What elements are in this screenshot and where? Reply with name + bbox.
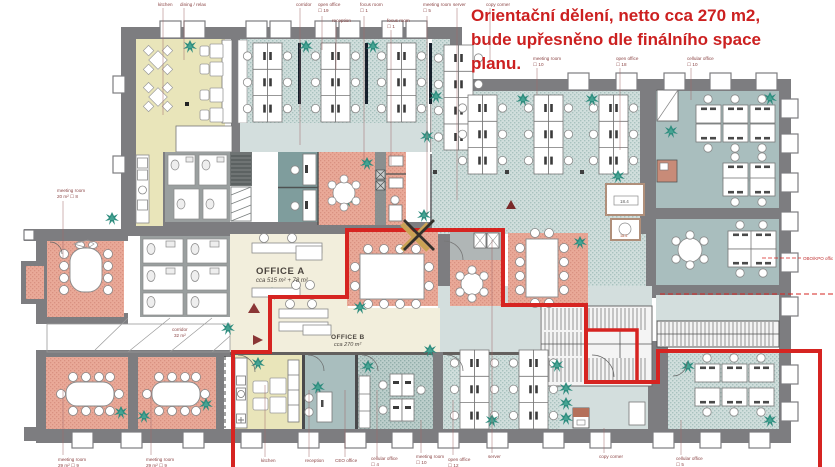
svg-text:reception: reception <box>332 18 351 23</box>
svg-text:copy corner: copy corner <box>599 454 623 459</box>
svg-text:18.5: 18.5 <box>620 234 627 238</box>
svg-text:server: server <box>488 454 501 459</box>
svg-text:reception: reception <box>305 458 324 463</box>
svg-text:cellular office: cellular office <box>687 56 714 61</box>
svg-text:OBO/KPO offic: OBO/KPO offic <box>803 256 834 261</box>
svg-text:dining / relax: dining / relax <box>180 2 207 7</box>
svg-text:focus room: focus room <box>387 18 410 23</box>
svg-text:open office: open office <box>448 457 471 462</box>
svg-text:CEO office: CEO office <box>335 458 358 463</box>
svg-text:☐ 10: ☐ 10 <box>687 62 698 67</box>
svg-text:20 m² ☐ 8: 20 m² ☐ 8 <box>57 194 78 199</box>
svg-text:meeting room: meeting room <box>146 457 174 462</box>
svg-text:meeting room: meeting room <box>58 457 86 462</box>
svg-text:☐ 4: ☐ 4 <box>371 462 379 467</box>
svg-text:meeting room: meeting room <box>533 56 561 61</box>
svg-text:cellular office: cellular office <box>371 456 398 461</box>
svg-text:☐ 5: ☐ 5 <box>423 8 431 13</box>
svg-text:☐ 19: ☐ 19 <box>318 8 329 13</box>
svg-text:meeting room: meeting room <box>57 188 85 193</box>
svg-text:open office: open office <box>616 56 639 61</box>
svg-text:cellular office: cellular office <box>676 456 703 461</box>
svg-text:OFFICE A: OFFICE A <box>256 266 305 277</box>
svg-text:☐ 10: ☐ 10 <box>416 460 427 465</box>
svg-text:18.4: 18.4 <box>620 199 629 204</box>
svg-text:copy corner: copy corner <box>486 2 510 7</box>
svg-text:meeting room: meeting room <box>416 454 444 459</box>
svg-text:focus room: focus room <box>360 2 383 7</box>
svg-text:☐ 10: ☐ 10 <box>533 62 544 67</box>
svg-text:cca 515 m² + 78 m²: cca 515 m² + 78 m² <box>256 278 309 284</box>
svg-text:☐ 18: ☐ 18 <box>616 62 627 67</box>
svg-text:cca 270 m²: cca 270 m² <box>334 342 361 348</box>
svg-text:server: server <box>453 2 466 7</box>
svg-text:planu.: planu. <box>471 54 521 73</box>
svg-text:corridor: corridor <box>296 2 312 7</box>
svg-text:☐ 5: ☐ 5 <box>676 462 684 467</box>
svg-text:kitchen: kitchen <box>158 2 173 7</box>
svg-text:OFFICE B: OFFICE B <box>331 334 365 341</box>
svg-text:bude upřesněno dle finálního s: bude upřesněno dle finálního space <box>471 30 761 49</box>
svg-text:29 m² ☐ 9: 29 m² ☐ 9 <box>58 463 79 467</box>
svg-text:meeting room: meeting room <box>423 2 451 7</box>
svg-text:open office: open office <box>318 2 341 7</box>
svg-text:☐ 1: ☐ 1 <box>360 8 368 13</box>
svg-text:29 m² ☐ 9: 29 m² ☐ 9 <box>146 463 167 467</box>
svg-text:☐ 1: ☐ 1 <box>387 24 395 29</box>
svg-text:kitchen: kitchen <box>261 458 276 463</box>
svg-text:corridor: corridor <box>172 327 188 332</box>
svg-text:☐ 12: ☐ 12 <box>448 463 459 467</box>
svg-text:32 m²: 32 m² <box>174 333 186 338</box>
svg-text:Orientační dělení, netto cca 2: Orientační dělení, netto cca 270 m2, <box>471 6 760 25</box>
